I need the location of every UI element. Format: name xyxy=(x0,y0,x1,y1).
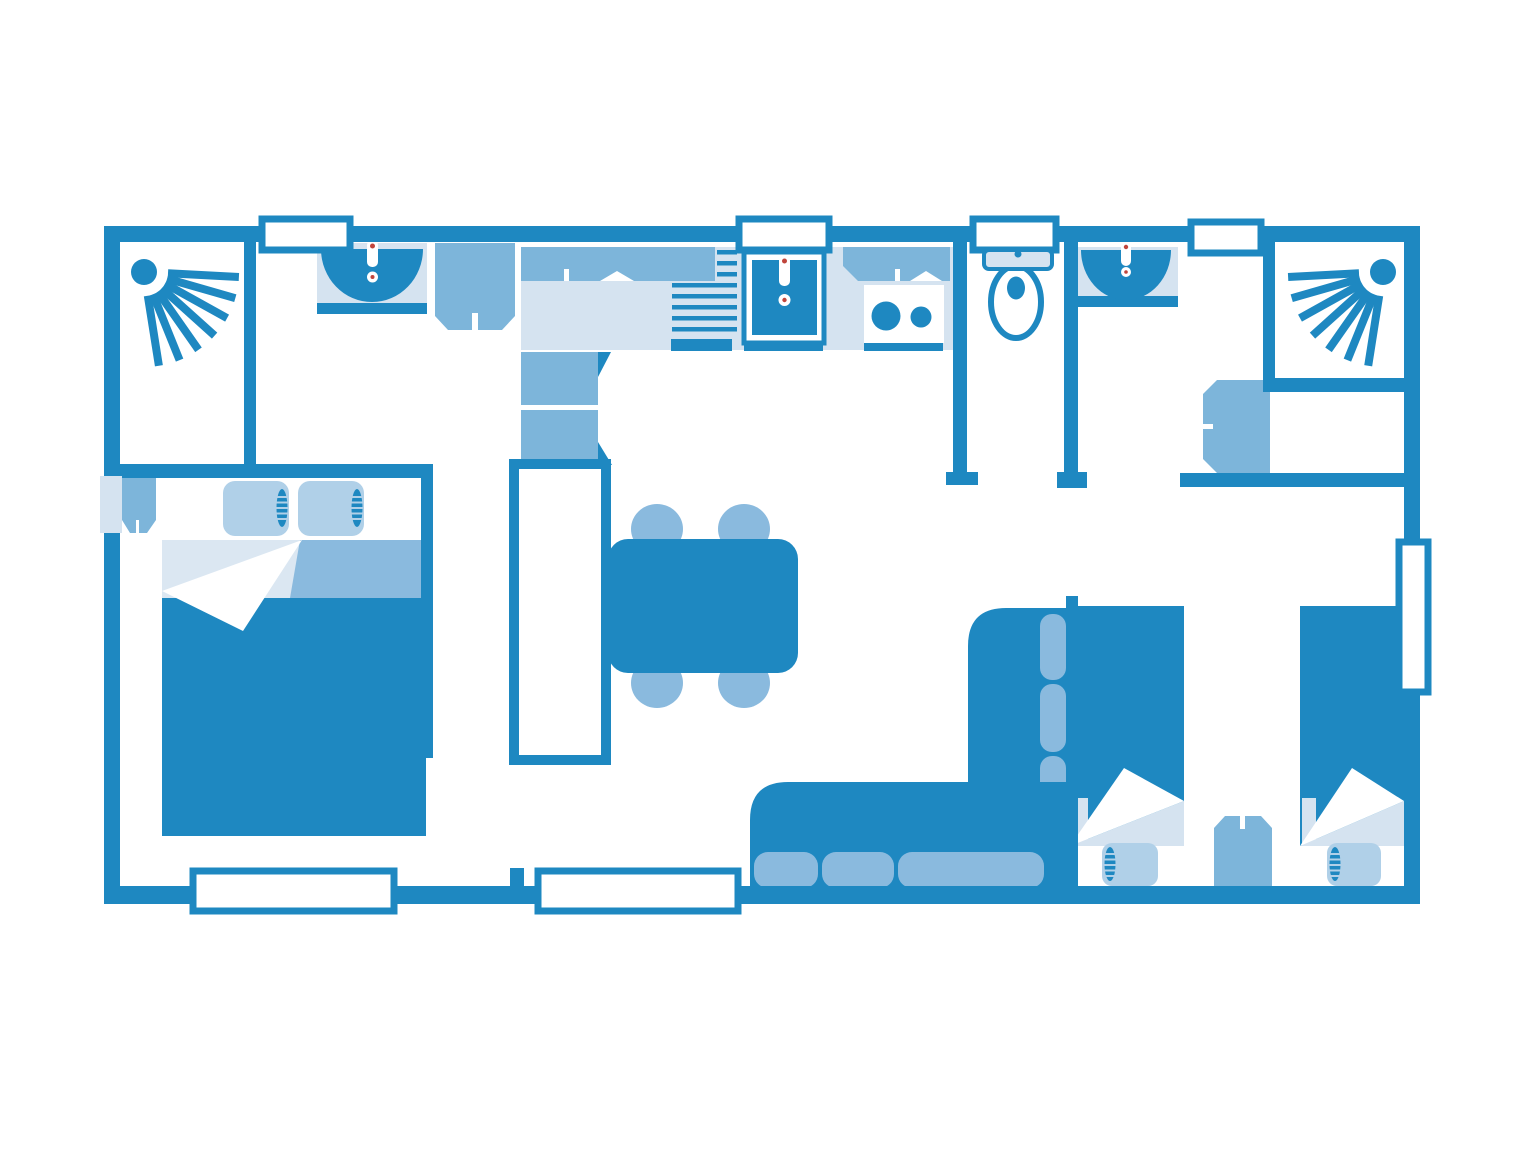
tall-cabinet xyxy=(521,352,612,465)
window xyxy=(193,871,394,911)
interior-wall xyxy=(1180,473,1404,487)
floorplan-page xyxy=(0,0,1536,1152)
sofa-cushion xyxy=(1040,614,1066,680)
nightstand xyxy=(1214,816,1272,888)
master-bedroom-furniture xyxy=(122,476,426,836)
window xyxy=(262,219,350,250)
shower-head-icon xyxy=(131,259,157,285)
toilet-cistern xyxy=(984,250,1052,269)
floorplan-canvas xyxy=(0,0,1536,1152)
shower-spray-rays-icon xyxy=(148,273,239,366)
interior-wall xyxy=(421,464,433,758)
wall-niche xyxy=(100,476,122,533)
door-jamb xyxy=(946,472,978,485)
sofa-cushion xyxy=(898,852,1044,888)
burner-large-icon xyxy=(872,302,901,331)
bed-blanket xyxy=(162,598,426,836)
shower-left xyxy=(131,259,239,366)
door-jamb xyxy=(1057,472,1087,488)
shower-spray-rays-icon xyxy=(1288,273,1379,366)
shower-right xyxy=(1288,259,1396,366)
wardrobe-bathroom-right xyxy=(1203,380,1270,473)
window xyxy=(1399,542,1428,692)
window xyxy=(538,871,738,911)
pillow-button-icon xyxy=(1330,847,1341,881)
single-bed xyxy=(1070,606,1184,888)
bedside-shelf xyxy=(122,476,156,533)
window xyxy=(1191,222,1261,253)
twin-bedroom-furniture xyxy=(1070,606,1404,888)
interior-wall xyxy=(1263,378,1404,392)
toilet xyxy=(991,266,1041,338)
wardrobe-bathroom-left xyxy=(435,243,515,330)
interior-wall xyxy=(1064,242,1078,474)
dining-set xyxy=(608,504,798,708)
window xyxy=(973,219,1056,250)
kitchen-block xyxy=(521,247,955,465)
interior-wall xyxy=(1066,596,1078,888)
pillow-button-icon xyxy=(277,489,288,527)
shower-head-icon xyxy=(1370,259,1396,285)
interior-wall xyxy=(1263,242,1275,392)
interior-wall xyxy=(953,242,967,474)
sofa-cushion xyxy=(822,852,894,888)
sofa-cushion xyxy=(754,852,818,888)
sofa-cushion xyxy=(1040,684,1066,752)
double-bed xyxy=(162,478,426,836)
interior-wall xyxy=(244,242,256,468)
washbasin-right xyxy=(1078,242,1178,307)
stove xyxy=(864,285,944,343)
window xyxy=(739,219,829,250)
dining-table xyxy=(608,539,798,673)
outer-wall-left xyxy=(104,226,120,904)
pillow-button-icon xyxy=(352,489,363,527)
hall-wardrobe xyxy=(514,464,606,760)
interior-wall xyxy=(120,464,433,478)
single-bed xyxy=(1300,606,1404,888)
pillow-button-icon xyxy=(1105,847,1116,881)
kitchen-sink xyxy=(744,252,824,343)
burner-small-icon xyxy=(911,307,932,328)
